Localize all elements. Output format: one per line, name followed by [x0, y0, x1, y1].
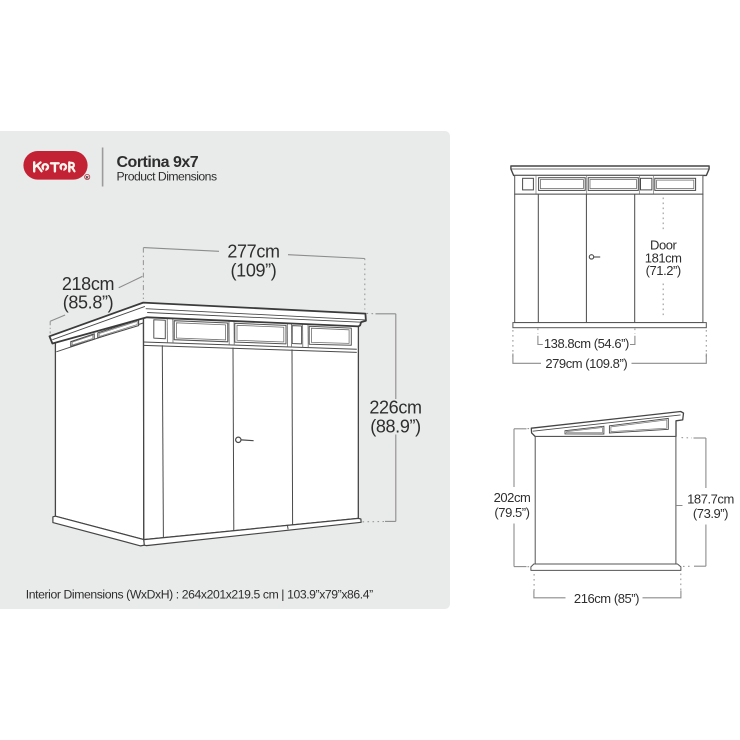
svg-text:(109”): (109”) [231, 261, 277, 281]
svg-text:(79.5”): (79.5”) [494, 505, 529, 520]
svg-text:Product Dimensions: Product Dimensions [117, 169, 217, 183]
svg-text:Interior Dimensions (WxDxH) :: Interior Dimensions (WxDxH) : 264x201x21… [26, 588, 373, 602]
svg-text:187.7cm: 187.7cm [687, 491, 734, 506]
svg-text:226cm: 226cm [369, 398, 421, 418]
svg-text:216cm (85”): 216cm (85”) [574, 591, 639, 606]
svg-text:R: R [86, 175, 89, 180]
svg-text:279cm (109.8”): 279cm (109.8”) [545, 356, 627, 371]
svg-text:(88.9”): (88.9”) [370, 417, 421, 437]
svg-text:277cm: 277cm [227, 242, 279, 262]
svg-text:(85.8”): (85.8”) [63, 293, 114, 313]
svg-text:(71.2”): (71.2”) [646, 263, 681, 278]
svg-text:(73.9”): (73.9”) [693, 506, 728, 521]
svg-text:202cm: 202cm [494, 490, 531, 505]
svg-text:138.8cm (54.6”): 138.8cm (54.6”) [544, 336, 629, 351]
svg-text:218cm: 218cm [62, 274, 114, 294]
